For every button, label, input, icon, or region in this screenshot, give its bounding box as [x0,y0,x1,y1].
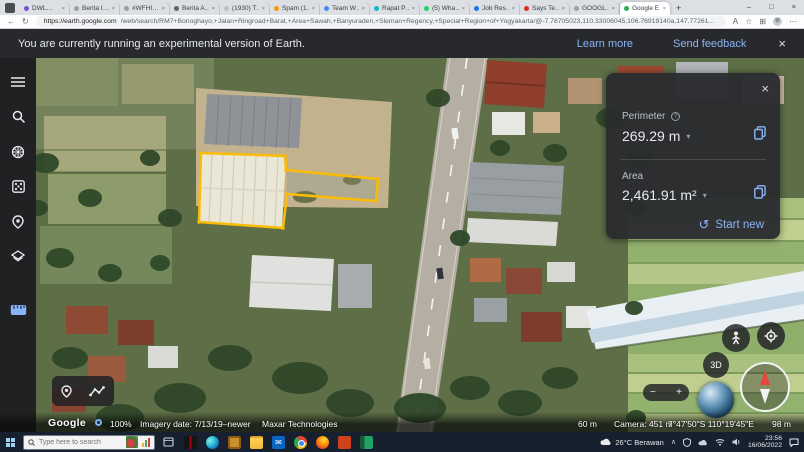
browser-tab[interactable]: Job Res… × [470,2,520,15]
compass-south-needle [760,389,770,404]
tab-close-icon[interactable]: × [312,6,315,12]
browser-tab[interactable]: Rapat P… × [370,2,420,15]
start-new-button[interactable]: ↺ Start new [699,217,764,233]
tab-close-icon[interactable]: × [162,6,165,12]
tab-close-icon[interactable]: × [62,6,65,12]
map-status-bar: Google 100% Imagery date: 7/13/19–newer … [0,412,804,432]
browser-tab-strip: DWL… × Berita I… × #WFHI… × Berita A… × [0,0,804,15]
browser-tab[interactable]: Spam (1… × [270,2,320,15]
google-logo: Google [48,417,86,429]
notice-message: You are currently running an experimenta… [18,38,537,50]
send-feedback-link[interactable]: Send feedback [673,38,746,50]
back-icon[interactable]: ← [7,17,15,26]
refresh-icon[interactable]: ↻ [22,17,29,26]
attribution-ring-icon [95,419,102,426]
workspace-icon[interactable] [5,3,15,13]
tab-favicon [74,6,79,11]
tab-close-icon[interactable]: × [112,6,115,12]
pinned-apps: ✉ [184,436,373,449]
onedrive-cloud-icon[interactable] [698,439,708,446]
learn-more-link[interactable]: Learn more [577,38,633,50]
tab-favicon [224,6,229,11]
coordinates: 7°47'50"S 110°19'45"E [668,419,754,429]
map-stage: × Perimeter ? 269.29 m ▾ Area 2,461.91 m… [0,58,804,432]
browser-tab[interactable]: Berita A… × [170,2,220,15]
favorite-star-icon[interactable]: ☆ [745,17,752,26]
voyager-icon[interactable] [0,134,36,169]
tab-favicon [624,6,629,11]
copy-area-icon[interactable] [754,185,766,199]
collections-icon[interactable]: ⊞ [759,17,766,26]
url-field[interactable]: https://earth.google.com /web/search/RM7… [36,16,726,27]
tab-close-icon[interactable]: × [512,6,515,12]
task-view-icon[interactable] [163,437,174,447]
tab-close-icon[interactable]: × [412,6,415,12]
elevation: 98 m [772,419,791,429]
screen: DWL… × Berita I… × #WFHI… × Berita A… × [0,0,804,452]
projects-pin-icon[interactable] [0,204,36,239]
taskbar-search[interactable] [23,435,155,450]
close-button[interactable]: × [792,2,796,11]
search-icon [28,439,35,446]
restart-icon: ↺ [699,217,710,233]
pegman-button[interactable] [722,324,750,352]
profile-avatar[interactable] [773,17,782,26]
help-icon[interactable]: ? [671,112,680,121]
browser-tab[interactable]: Says Te… × [520,2,570,15]
browser-tab[interactable]: Berita I… × [70,2,120,15]
imagery-date: Imagery date: 7/13/19–newer [140,419,251,429]
browser-tab[interactable]: DWL… × [20,2,70,15]
camera-altitude: Camera: 451 m [614,419,673,429]
browser-address-bar: ← ↻ https://earth.google.com /web/search… [0,15,804,29]
scale-label: 60 m [578,419,597,429]
chrome-app-icon[interactable] [294,436,307,449]
tab-favicon [174,6,179,11]
search-highlight-image[interactable] [126,436,138,448]
clock-date: 16/06/2022 [748,442,782,450]
tab-favicon [574,6,579,11]
tab-list: DWL… × Berita I… × #WFHI… × Berita A… × [20,0,670,15]
area-value: 2,461.91 m² ▾ [622,187,707,203]
zoom-controls: − + [643,384,689,401]
maximize-button[interactable]: □ [769,2,774,11]
amber-app-icon[interactable] [228,436,241,449]
excel-app-icon[interactable] [360,436,373,449]
notice-close-icon[interactable]: × [778,36,786,51]
browser-menu-icon[interactable]: ⋯ [789,17,797,26]
perimeter-value: 269.29 m ▾ [622,128,690,144]
window-controls: – □ × [747,2,796,11]
map-bottom-left-tools [52,376,114,406]
measure-tool-icon[interactable] [0,292,36,327]
file-explorer-icon[interactable] [250,436,263,449]
browser-tab[interactable]: GOOGL… × [570,2,620,15]
tab-favicon [24,6,29,11]
url-host: https://earth.google.com [44,18,117,25]
browser-tab[interactable]: #WFHI… × [120,2,170,15]
panel-close-icon[interactable]: × [761,81,769,96]
tab-favicon [374,6,379,11]
netflix-app-icon[interactable] [184,436,197,449]
firefox-app-icon[interactable] [316,436,329,449]
taskbar-clock[interactable]: 23:56 16/06/2022 [748,435,782,450]
clock-time: 23:56 [748,435,782,443]
edge-app-icon[interactable] [206,436,219,449]
imagery-attribution: Maxar Technologies [262,419,337,429]
interests-chart-icon [142,438,150,447]
tab-close-icon[interactable]: × [562,6,565,12]
weather-widget[interactable]: 26°C Berawan [600,438,663,447]
url-path: /web/search/RM7+Bonoghayo,+Jalan+Ringroa… [121,18,718,25]
red-app-icon[interactable] [338,436,351,449]
tab-close-icon[interactable]: × [362,6,365,12]
tab-close-icon[interactable]: × [462,6,465,12]
speaker-icon[interactable] [732,438,741,446]
my-location-icon[interactable] [757,322,785,350]
zoom-percent: 100% [110,419,132,429]
start-button[interactable] [0,432,20,452]
browser-tab[interactable]: Google E… × [620,2,670,15]
map-style-layers-icon[interactable] [0,239,36,274]
system-tray: 26°C Berawan ∧ 23:56 16/06/2022 [600,435,804,450]
mail-app-icon[interactable]: ✉ [272,436,285,449]
zoom-in-button[interactable]: + [676,387,682,398]
feeling-lucky-dice-icon[interactable] [0,169,36,204]
tab-favicon [124,6,129,11]
tab-favicon [424,6,429,11]
tab-close-icon[interactable]: × [612,6,615,12]
windows-logo-icon [6,438,15,447]
tab-favicon [474,6,479,11]
zoom-out-button[interactable]: − [650,387,656,398]
experimental-notice-bar: You are currently running an experimenta… [0,29,804,58]
read-aloud-icon[interactable]: A [733,17,738,26]
search-icon[interactable] [0,99,36,134]
tab-favicon [274,6,279,11]
area-label-row: Area [622,171,643,182]
tab-close-icon[interactable]: × [663,6,666,12]
compass-north-needle [760,370,770,385]
location-pin-icon[interactable] [61,385,72,398]
copy-perimeter-icon[interactable] [754,126,766,140]
browser-tab[interactable]: (5) Wha… × [420,2,470,15]
wifi-icon[interactable] [715,438,725,446]
unit-dropdown-icon[interactable]: ▾ [686,132,690,141]
taskbar-search-input[interactable] [39,439,111,446]
windows-taskbar: ✉ 26°C Berawan ∧ 2 [0,432,804,452]
cloud-weather-icon [600,438,611,446]
measure-path-icon[interactable] [89,386,105,397]
menu-icon[interactable] [0,64,36,99]
tab-close-icon[interactable]: × [262,6,265,12]
tab-favicon [324,6,329,11]
compass[interactable] [740,362,790,412]
earth-sidebar [0,58,36,432]
shield-icon[interactable] [683,438,691,447]
measurement-panel: × Perimeter ? 269.29 m ▾ Area 2,461.91 m… [606,73,780,239]
minimize-button[interactable]: – [747,2,751,11]
panel-divider [620,159,766,160]
tab-close-icon[interactable]: × [212,6,215,12]
tray-expand-icon[interactable]: ∧ [671,438,676,446]
action-center-icon[interactable] [789,438,799,447]
browser-tab[interactable]: Team W… × [320,2,370,15]
browser-tab[interactable]: (1930) T… × [220,2,270,15]
perimeter-label-row: Perimeter ? [622,111,680,122]
3d-toggle-button[interactable]: 3D [703,352,729,378]
tab-favicon [524,6,529,11]
unit-dropdown-icon[interactable]: ▾ [703,191,707,200]
new-tab-button[interactable]: + [676,3,681,13]
